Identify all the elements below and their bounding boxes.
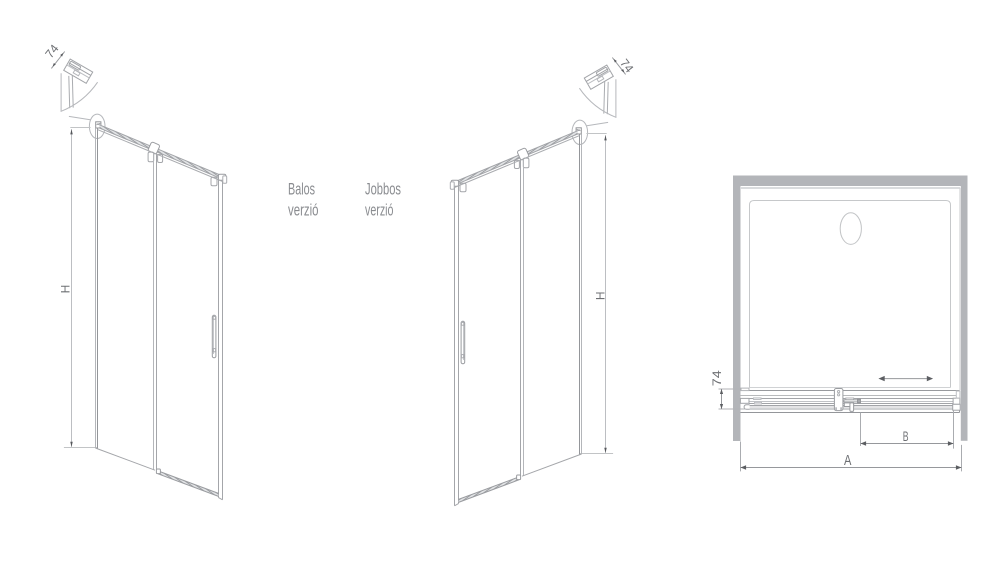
svg-text:74: 74 xyxy=(710,370,724,386)
svg-text:H: H xyxy=(594,291,608,300)
svg-text:74: 74 xyxy=(617,56,636,75)
svg-text:verzió: verzió xyxy=(365,201,394,220)
svg-text:74: 74 xyxy=(42,41,61,60)
svg-text:H: H xyxy=(59,285,73,294)
svg-text:verzió: verzió xyxy=(288,201,319,220)
svg-text:A: A xyxy=(844,452,851,469)
svg-text:Jobbos: Jobbos xyxy=(365,180,401,199)
svg-text:Balos: Balos xyxy=(288,180,315,199)
svg-text:B: B xyxy=(903,428,909,444)
